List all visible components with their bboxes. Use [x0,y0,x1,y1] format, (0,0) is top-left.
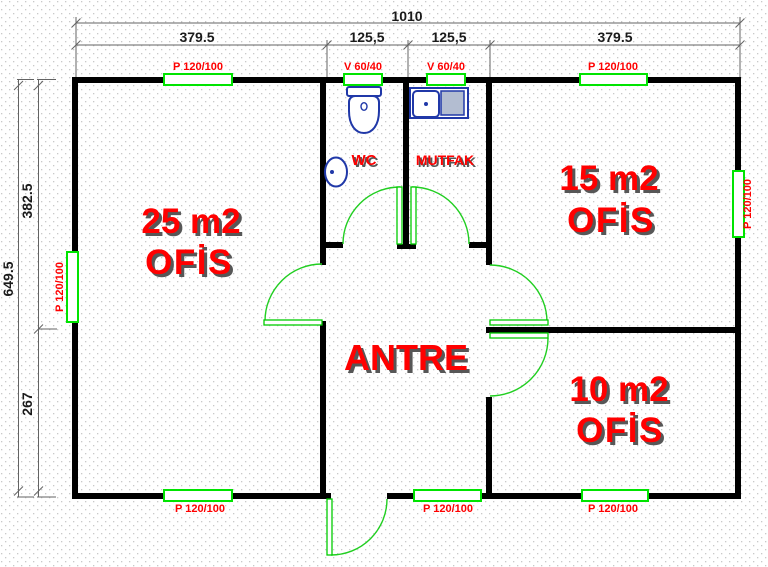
svg-text:267: 267 [19,392,35,416]
svg-text:25 m2: 25 m2 [141,202,240,241]
svg-text:382.5: 382.5 [19,183,35,218]
svg-text:WC: WC [352,152,377,169]
svg-text:P 120/100: P 120/100 [588,61,638,73]
svg-text:379.5: 379.5 [597,29,632,45]
svg-text:P 120/100: P 120/100 [588,503,638,515]
svg-text:379.5: 379.5 [179,29,214,45]
svg-text:15 m2: 15 m2 [559,159,658,198]
svg-text:V 60/40: V 60/40 [427,61,465,73]
svg-text:P 120/100: P 120/100 [175,503,225,515]
svg-text:10 m2: 10 m2 [569,370,668,409]
svg-text:1010: 1010 [391,8,422,24]
svg-text:P 120/100: P 120/100 [173,61,223,73]
svg-text:OFİS: OFİS [145,243,233,282]
svg-text:OFİS: OFİS [567,201,655,240]
svg-text:OFİS: OFİS [576,411,664,450]
svg-text:P 120/100: P 120/100 [742,179,754,229]
svg-text:MUTFAK: MUTFAK [416,152,474,168]
svg-text:125,5: 125,5 [349,29,384,45]
svg-text:649.5: 649.5 [0,261,16,296]
svg-text:V 60/40: V 60/40 [344,61,382,73]
svg-text:125,5: 125,5 [431,29,466,45]
svg-text:P 120/100: P 120/100 [54,262,66,312]
svg-text:P 120/100: P 120/100 [423,503,473,515]
svg-text:ANTRE: ANTRE [344,337,468,378]
